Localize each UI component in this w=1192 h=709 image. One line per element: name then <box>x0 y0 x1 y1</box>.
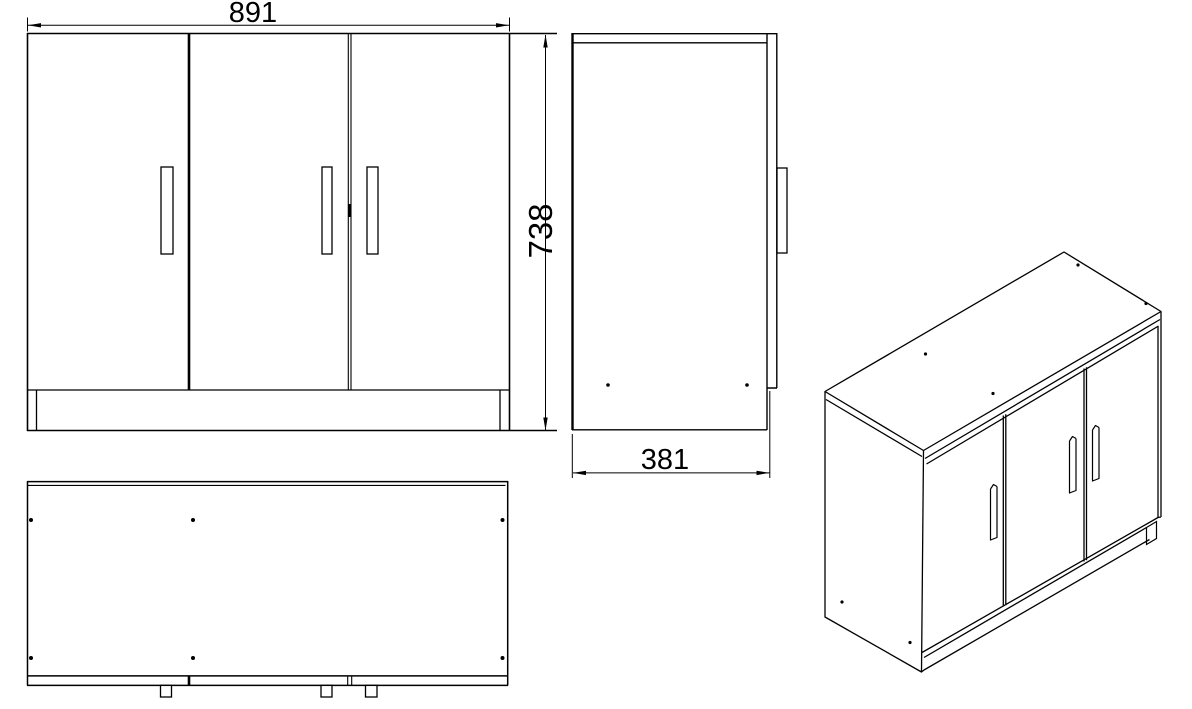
arrowhead-right <box>496 23 509 27</box>
fastener-dot <box>924 352 927 355</box>
plan-view <box>27 481 508 697</box>
side-door-handle <box>777 168 787 253</box>
fastener-dot <box>745 383 749 387</box>
fastener-dot <box>191 518 195 522</box>
isometric-cabinet-outline <box>825 252 1161 672</box>
arrowhead-left <box>573 471 586 475</box>
plan-handle-tab-left <box>161 685 172 697</box>
arrowhead-bottom <box>543 418 547 431</box>
fastener-dot <box>991 392 994 395</box>
height-dimension: 738 <box>522 35 559 431</box>
fastener-dot <box>606 383 610 387</box>
isometric-view <box>825 252 1161 672</box>
technical-drawing-canvas: 891 738 381 <box>0 0 1192 709</box>
fastener-dot <box>1076 263 1079 266</box>
front-view <box>27 33 557 431</box>
arrowhead-top <box>543 35 547 48</box>
depth-dimension-label: 381 <box>641 444 689 476</box>
fastener-dot <box>501 518 505 522</box>
isometric-door-handles <box>991 426 1100 541</box>
door-handle-middle <box>322 167 332 254</box>
fastener-dot <box>29 518 33 522</box>
fastener-dot <box>191 656 195 660</box>
arrowhead-right <box>757 471 770 475</box>
door-handle-left <box>161 167 173 254</box>
fastener-dot <box>29 656 33 660</box>
plan-fastener-dots <box>29 518 505 660</box>
plan-handle-tab-right <box>366 685 378 697</box>
width-dimension: 891 <box>28 0 510 32</box>
plan-outline <box>27 481 508 685</box>
fastener-dot <box>1144 302 1147 305</box>
fastener-dot <box>908 641 911 644</box>
height-dimension-label: 738 <box>522 203 559 258</box>
depth-dimension: 381 <box>572 391 770 478</box>
door-handle-right <box>367 167 378 254</box>
fastener-dot <box>840 600 843 603</box>
plan-handle-tab-middle <box>321 685 332 697</box>
arrowhead-left <box>28 23 41 27</box>
side-view <box>572 33 787 430</box>
fastener-dot <box>501 656 505 660</box>
plan-back-panel-line <box>27 485 506 685</box>
side-outline <box>572 33 777 430</box>
front-outline <box>27 33 557 431</box>
plinth-front <box>27 390 510 431</box>
width-dimension-label: 891 <box>229 0 277 29</box>
isometric-fastener-dots <box>840 263 1147 644</box>
